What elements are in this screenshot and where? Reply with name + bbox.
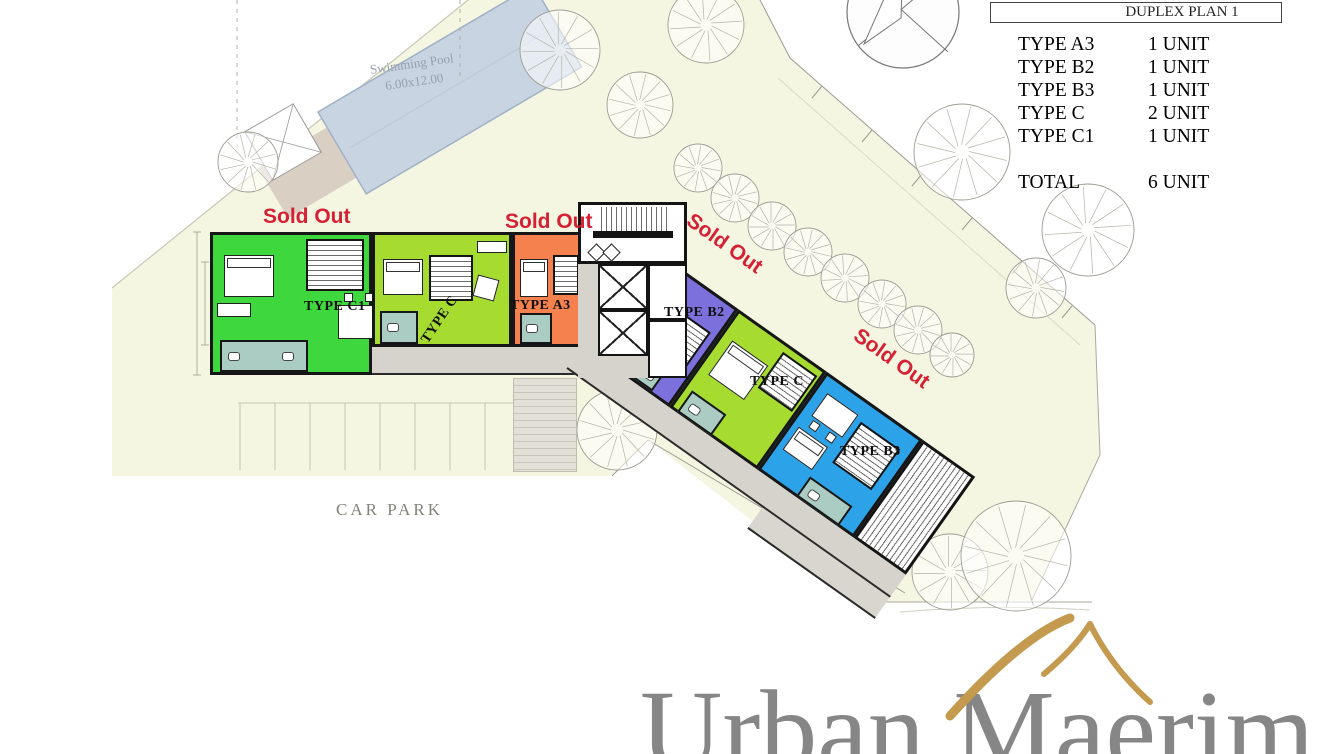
unit-count-cell: 1 UNIT <box>1148 126 1209 149</box>
building-core <box>578 202 690 378</box>
unit-count-cell: 1 UNIT <box>1148 80 1209 103</box>
toilet <box>228 352 240 361</box>
table-row: TYPE C1 1 UNIT <box>1018 126 1318 149</box>
bed <box>224 255 274 297</box>
total-label: TOTAL <box>1018 172 1148 195</box>
unit-type-cell: TYPE A3 <box>1018 34 1148 57</box>
tree-icon <box>1042 184 1134 276</box>
car-park-label: CAR PARK <box>336 500 443 520</box>
pillow <box>227 258 271 268</box>
bed <box>783 427 829 471</box>
bed <box>520 259 548 297</box>
stairs <box>306 239 364 291</box>
plan-table-header: DUPLEX PLAN 1 <box>990 2 1282 23</box>
pillow <box>727 345 764 375</box>
stair-landing-rail <box>593 231 673 238</box>
tree-icon <box>1006 258 1066 318</box>
bed <box>383 259 423 295</box>
tree-icon <box>520 10 600 90</box>
elevator <box>598 264 648 310</box>
toilet <box>387 323 399 332</box>
unit-label-b2: TYPE B2 <box>664 305 725 321</box>
table-row: TYPE C 2 UNIT <box>1018 103 1318 126</box>
pillow <box>386 262 420 272</box>
unit-type-cell: TYPE C1 <box>1018 126 1148 149</box>
service-room <box>648 320 687 378</box>
unit-type-a3 <box>512 232 582 347</box>
unit-label-c1: TYPE C1 <box>304 299 365 315</box>
north-arrow-icon <box>847 0 959 68</box>
table-row: TYPE A3 1 UNIT <box>1018 34 1318 57</box>
unit-type-cell: TYPE C <box>1018 103 1148 126</box>
tree-icon <box>961 501 1071 611</box>
tree-icon <box>218 132 278 192</box>
total-count: 6 UNIT <box>1148 172 1209 195</box>
site-plan-canvas: Sold Out Sold Out Sold Out Sold Out TYPE… <box>0 0 1342 754</box>
bathroom <box>220 340 308 372</box>
tree-icon <box>607 72 673 138</box>
kitchen-counter <box>477 241 507 253</box>
pillow <box>523 262 545 272</box>
desk <box>217 303 251 317</box>
corridor <box>372 347 582 375</box>
unit-label-b3: TYPE B3 <box>840 444 901 460</box>
bed <box>708 340 768 400</box>
table-row: TYPE B3 1 UNIT <box>1018 80 1318 103</box>
unit-label-a3: TYPE A3 <box>510 298 571 314</box>
unit-count-cell: 2 UNIT <box>1148 103 1209 126</box>
table-row: TYPE B2 1 UNIT <box>1018 57 1318 80</box>
toilet <box>526 324 538 333</box>
pillow <box>794 431 824 456</box>
tree-icon <box>930 333 974 377</box>
table-total-row: TOTAL 6 UNIT <box>1018 172 1318 195</box>
toilet <box>806 488 821 502</box>
unit-type-cell: TYPE B3 <box>1018 80 1148 103</box>
stairs <box>553 255 579 295</box>
toilet <box>687 403 702 417</box>
sold-out-label-a3: Sold Out <box>505 210 593 234</box>
sold-out-label-c1: Sold Out <box>263 205 351 229</box>
unit-count-cell: 1 UNIT <box>1148 34 1209 57</box>
bathroom <box>380 311 418 344</box>
unit-count-cell: 1 UNIT <box>1148 57 1209 80</box>
mountain-logo-icon <box>930 598 1170 728</box>
bathroom <box>520 313 552 344</box>
dining-table <box>811 393 858 438</box>
tree-icon <box>914 104 1010 200</box>
sink <box>282 352 294 361</box>
unit-type-cell: TYPE B2 <box>1018 57 1148 80</box>
elevator <box>598 310 648 356</box>
unit-label-c-right: TYPE C <box>750 374 804 390</box>
table <box>473 275 500 302</box>
